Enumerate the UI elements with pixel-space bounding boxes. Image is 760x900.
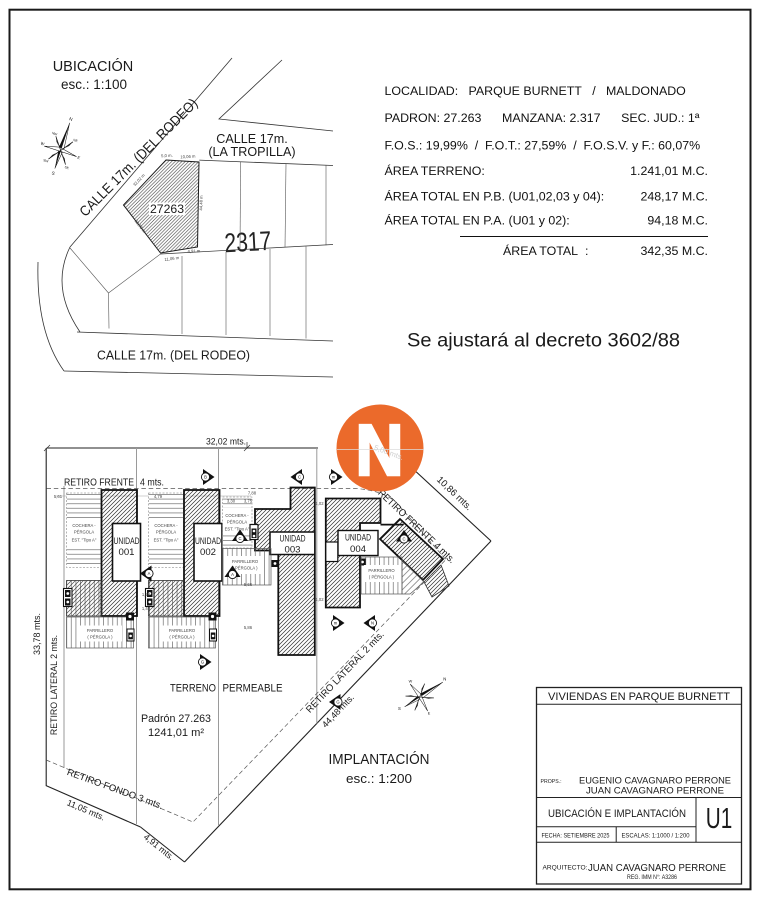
svg-text:7,88: 7,88 <box>248 491 257 496</box>
svg-text:ÁREA TOTAL EN P.A. (U01 y 02):: ÁREA TOTAL EN P.A. (U01 y 02): <box>385 213 570 228</box>
svg-text:5,66: 5,66 <box>244 582 253 587</box>
svg-text:RETIRO FRENTE: RETIRO FRENTE <box>64 478 134 489</box>
svg-text:VIVIENDAS EN PARQUE BURNETT: VIVIENDAS EN PARQUE BURNETT <box>548 691 730 703</box>
svg-text:4 mts.: 4 mts. <box>140 478 164 489</box>
svg-text:C: C <box>238 536 241 541</box>
svg-text:PADRON: 27.263 MANZANA: 2: PADRON: 27.263 MANZANA: 2.317 SEC. JUD.:… <box>385 111 700 125</box>
svg-text:ÁREA TOTAL :: ÁREA TOTAL : <box>503 243 588 258</box>
svg-text:FECHA: SETIEMBRE 2025: FECHA: SETIEMBRE 2025 <box>542 833 610 840</box>
svg-text:( PÉRGOLA ): ( PÉRGOLA ) <box>169 635 195 640</box>
svg-text:001: 001 <box>119 546 135 557</box>
svg-text:002: 002 <box>200 546 216 557</box>
svg-text:EST. "Tipo A": EST. "Tipo A" <box>225 527 250 532</box>
svg-text:( PÉRGOLA ): ( PÉRGOLA ) <box>87 635 113 640</box>
svg-text:UNIDAD: UNIDAD <box>195 535 221 546</box>
svg-text:3,75: 3,75 <box>244 499 253 504</box>
svg-text:m: m <box>334 621 338 626</box>
svg-text:COCHERA -: COCHERA - <box>225 513 249 518</box>
svg-text:N: N <box>371 621 374 626</box>
svg-text:1,02: 1,02 <box>315 501 324 506</box>
svg-text:N: N <box>443 677 446 682</box>
svg-text:E: E <box>428 711 431 715</box>
svg-text:1,40: 1,40 <box>142 606 151 611</box>
svg-text:RETIRO LATERAL 2 mts.: RETIRO LATERAL 2 mts. <box>49 635 59 735</box>
svg-text:U1: U1 <box>706 803 733 835</box>
svg-text:1,20: 1,20 <box>142 592 151 597</box>
svg-text:W: W <box>409 679 413 683</box>
svg-text:3,30: 3,30 <box>227 499 236 504</box>
svg-text:B: B <box>204 475 207 480</box>
svg-text:PÉRGOLA: PÉRGOLA <box>156 530 176 535</box>
svg-text:342,35 M.C.: 342,35 M.C. <box>641 244 709 258</box>
svg-text:94,18 M.C.: 94,18 M.C. <box>647 214 708 228</box>
svg-text:( PÉRGOLA ): ( PÉRGOLA ) <box>369 575 395 580</box>
svg-text:C: C <box>402 537 405 542</box>
svg-text:5,86: 5,86 <box>244 625 253 630</box>
svg-text:UNIDAD: UNIDAD <box>280 533 306 544</box>
svg-text:A: A <box>231 572 234 577</box>
svg-text:UNIDAD: UNIDAD <box>345 532 371 543</box>
svg-text:( PÉRGOLA ): ( PÉRGOLA ) <box>232 566 258 571</box>
svg-text:CALLE 17m.: CALLE 17m. <box>216 132 287 146</box>
svg-text:44,48 m: 44,48 m <box>198 195 204 211</box>
svg-text:2317: 2317 <box>224 226 273 258</box>
svg-text:esc.: 1:100: esc.: 1:100 <box>61 77 127 92</box>
svg-text:G: G <box>201 660 204 665</box>
svg-text:A: A <box>148 571 151 576</box>
svg-text:004: 004 <box>350 543 366 554</box>
svg-text:PARRILLERO: PARRILLERO <box>232 559 259 564</box>
svg-text:PÉRGOLA: PÉRGOLA <box>74 530 94 535</box>
svg-text:TERRENO: TERRENO <box>170 683 216 695</box>
svg-text:CALLE 17m. (DEL RODEO): CALLE 17m. (DEL RODEO) <box>97 348 250 363</box>
svg-text:PÉRGOLA: PÉRGOLA <box>227 520 247 525</box>
svg-text:Padrón 27.263: Padrón 27.263 <box>141 713 211 725</box>
svg-text:5,61: 5,61 <box>54 494 63 499</box>
svg-text:UBICACIÓN E IMPLANTACIÓN: UBICACIÓN E IMPLANTACIÓN <box>548 807 686 820</box>
svg-text:33,78 mts.: 33,78 mts. <box>32 613 42 655</box>
svg-text:PARRILLERO: PARRILLERO <box>87 628 114 633</box>
svg-text:ÁREA TOTAL EN P.B. (U01,02,03: ÁREA TOTAL EN P.B. (U01,02,03 y 04): <box>385 189 605 204</box>
svg-text:C: C <box>298 475 301 480</box>
svg-text:COCHERA -: COCHERA - <box>72 523 96 528</box>
svg-text:ÁREA TERRENO:: ÁREA TERRENO: <box>385 163 485 178</box>
svg-text:248,17 M.C.: 248,17 M.C. <box>641 190 709 204</box>
svg-text:esc.: 1:200: esc.: 1:200 <box>346 771 412 786</box>
svg-text:10,06 m: 10,06 m <box>180 154 196 160</box>
svg-text:m: m <box>332 475 336 480</box>
svg-text:Se ajustará al decreto 3602/88: Se ajustará al decreto 3602/88 <box>407 330 680 352</box>
svg-text:JUAN CAVAGNARO PERRONE: JUAN CAVAGNARO PERRONE <box>586 785 724 796</box>
svg-text:EST. "Tipo A": EST. "Tipo A" <box>72 538 97 543</box>
svg-text:PROPS.:: PROPS.: <box>541 779 562 785</box>
svg-text:4,91 m: 4,91 m <box>187 248 201 254</box>
svg-text:(LA TROPILLA): (LA TROPILLA) <box>208 145 295 159</box>
svg-text:PERMEABLE: PERMEABLE <box>223 683 283 695</box>
svg-text:4,79: 4,79 <box>154 494 163 499</box>
svg-text:PARRILLERO: PARRILLERO <box>368 568 395 573</box>
svg-text:PARRILLERO: PARRILLERO <box>169 628 196 633</box>
svg-text:1,02: 1,02 <box>315 597 324 602</box>
svg-text:ESCALAS: 1:1000 / 1:200: ESCALAS: 1:1000 / 1:200 <box>622 833 690 840</box>
svg-text:27263: 27263 <box>150 202 184 216</box>
svg-text:JUAN CAVAGNARO PERRONE: JUAN CAVAGNARO PERRONE <box>588 863 726 874</box>
svg-text:IMPLANTACIÓN: IMPLANTACIÓN <box>329 751 430 768</box>
svg-text:1241,01 m²: 1241,01 m² <box>148 727 204 739</box>
svg-text:EST. "Tipo A": EST. "Tipo A" <box>154 538 179 543</box>
svg-text:UNIDAD: UNIDAD <box>114 535 140 546</box>
svg-text:1.241,01 M.C.: 1.241,01 M.C. <box>630 164 708 178</box>
svg-text:COCHERA -: COCHERA - <box>154 523 178 528</box>
svg-text:ARQUITECTO:: ARQUITECTO: <box>543 865 588 872</box>
svg-text:003: 003 <box>285 544 301 555</box>
svg-text:S: S <box>398 706 401 711</box>
svg-text:F.O.S.: 19,99% / F.O.T.: 27,: F.O.S.: 19,99% / F.O.T.: 27,59% / F.O.S.… <box>385 139 701 153</box>
svg-text:5,0 m.: 5,0 m. <box>161 153 173 159</box>
svg-text:LOCALIDAD: PARQUE BURNETT: LOCALIDAD: PARQUE BURNETT / MALDONADO <box>385 84 687 98</box>
svg-text:UBICACIÓN: UBICACIÓN <box>53 58 134 75</box>
svg-text:REG. IMM N°: A3286: REG. IMM N°: A3286 <box>627 875 678 881</box>
svg-text:32,02 mts.: 32,02 mts. <box>206 437 246 447</box>
